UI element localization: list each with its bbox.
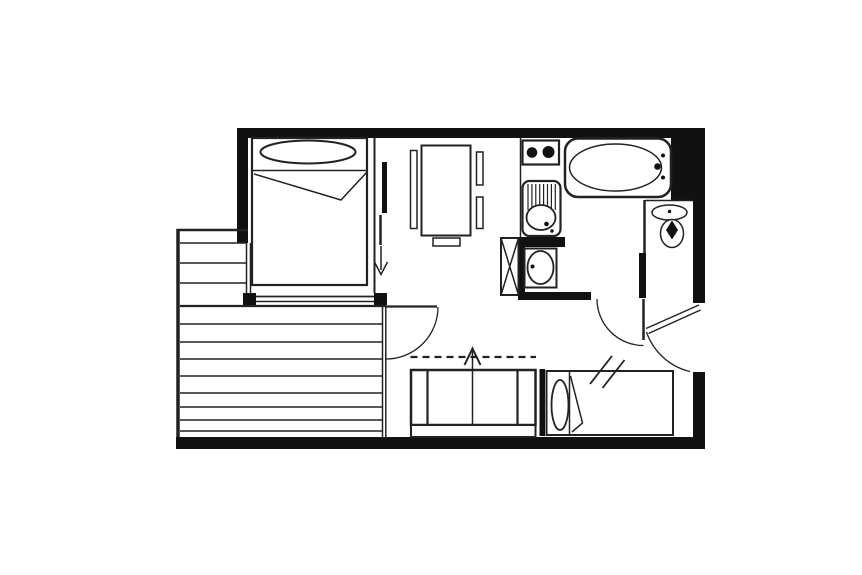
- kitchen-unit-base-wall: [518, 237, 565, 247]
- sink-tap-icon: [544, 222, 549, 227]
- balcony-door-arc: [386, 307, 438, 359]
- floor-plan-canvas: balcony-decking-lines double-bed bedroom…: [0, 0, 862, 575]
- wall-left: [237, 128, 248, 243]
- entrance-door-leaf-line: [649, 310, 701, 334]
- wall-top: [237, 128, 705, 138]
- chair-left: [411, 151, 418, 229]
- sliding-door-panel: [382, 162, 387, 213]
- double-bed: double-bed: [252, 138, 367, 285]
- chair-right-top: [477, 152, 484, 185]
- single-bed-pillow: [552, 380, 569, 430]
- entrance-door-arc: [647, 332, 691, 372]
- dining-table: [422, 146, 471, 236]
- bedroom-sliding-door: bedroom-sliding-door: [381, 162, 388, 245]
- washbasin-tap-icon: [531, 265, 535, 269]
- washbasin: washbasin: [525, 249, 557, 288]
- sofa-bed-divider-bar: [540, 369, 546, 436]
- entrance-door-leaf-line: [646, 305, 699, 329]
- bedroom-entry-arrow: arrow-down: [375, 246, 388, 275]
- chair-right-bottom: [477, 197, 484, 229]
- double-bed-frame: [252, 138, 367, 285]
- bathroom-door-arc: [597, 299, 644, 346]
- wall-bottom: [176, 437, 705, 449]
- bedroom: double-bed bedroom-sliding-door arrow-do…: [252, 138, 388, 285]
- bathroom-door: bathroom-door-swing: [597, 299, 644, 346]
- bathtub-tap-icon: [661, 176, 665, 180]
- wc-wall-lower: [639, 253, 646, 298]
- wall-fill-beside-bathtub: [671, 128, 693, 200]
- burner-icon: [543, 146, 555, 158]
- kitchen-sink: kitchen-sink-with-drainboard: [523, 181, 561, 236]
- toilet-button-icon: [668, 210, 671, 213]
- bench: [433, 238, 460, 246]
- bathtub-faucet-icon: [654, 163, 661, 170]
- burner-icon: [527, 147, 538, 158]
- bathroom-wall-horizontal: [518, 292, 591, 300]
- bedroom-wall-cap-left: [243, 293, 256, 305]
- balcony-door: balcony-door-swing: [386, 307, 438, 360]
- floor-plan-svg: balcony-decking-lines double-bed bedroom…: [0, 0, 862, 575]
- wall-right-upper: [693, 128, 705, 303]
- storage-cabinet: crossed-storage-cabinet: [501, 238, 519, 295]
- door-swings: balcony-door-swing bathroom-door-swing e…: [386, 299, 701, 372]
- sofa-bed: convertible-sofa-bed: [411, 349, 537, 438]
- bathtub: bathtub: [565, 139, 671, 198]
- kitchenette: two-burner-hob kitchen-sink-with-drainbo…: [523, 141, 561, 237]
- sofa-base: [411, 425, 536, 437]
- wc: toilet: [652, 205, 687, 248]
- bathtub-tap-icon: [661, 154, 665, 158]
- stove-hob: two-burner-hob: [523, 141, 560, 165]
- dining-area: dining-table: [411, 146, 484, 247]
- bedroom-wall-cap-right: [374, 293, 387, 305]
- sink-drain-icon: [550, 229, 553, 232]
- sink-basin: [527, 205, 556, 230]
- entrance-door: entrance-door-swing: [646, 305, 701, 372]
- single-bed: single-bed: [547, 371, 674, 435]
